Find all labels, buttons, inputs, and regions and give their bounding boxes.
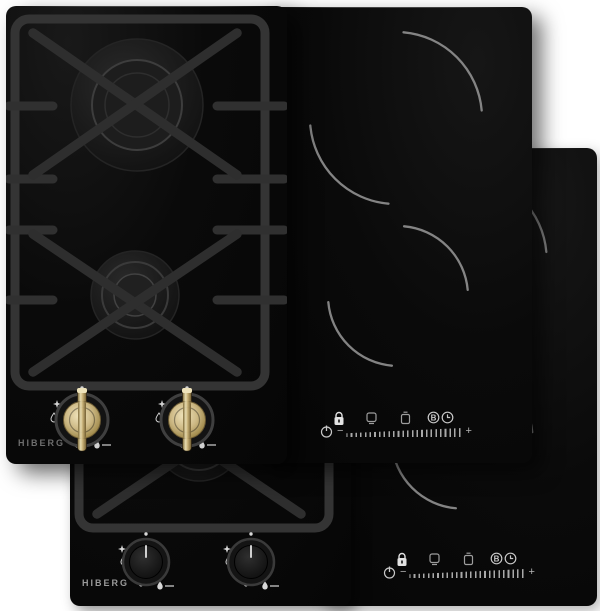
induction-zones-front [258,7,532,463]
timer-icon [504,552,517,565]
power-icon [320,425,333,438]
power-level-row: − + [383,566,535,579]
minus-label: − [337,426,343,437]
zone-arc [310,126,388,204]
zone-arc [328,302,392,366]
level-slider [346,428,462,437]
zone-arc [404,226,468,290]
svg-text:B: B [431,413,437,422]
gas-knob-brass [42,376,122,464]
gas-knob-black [106,518,186,606]
power-icon [383,566,396,579]
plus-label: + [465,426,471,437]
svg-text:B: B [494,554,500,563]
power-level-row: − + [320,425,472,438]
lock-icon [333,411,345,426]
boost-icon: B [427,411,440,424]
off-dot-marking [144,532,147,535]
lock-icon [396,552,408,567]
zone-pot-2-icon [399,411,412,425]
plus-label: + [528,567,534,578]
gas-hob-front: HIBERG [6,6,287,464]
zone-arc [404,32,482,110]
level-slider [409,569,525,578]
zone-pot-1-icon [365,411,378,425]
gas-knob-brass [147,376,227,464]
zone-pot-1-icon [428,552,441,566]
product-collage: B − + [0,0,600,611]
minus-label: − [400,567,406,578]
timer-icon [441,411,454,424]
gas-knob-black [211,518,291,606]
brand-logo: HIBERG [82,578,129,588]
induction-hob-front: B − + [258,7,532,463]
brand-logo: HIBERG [18,438,65,448]
boost-icon: B [490,552,503,565]
zone-pot-2-icon [462,552,475,566]
